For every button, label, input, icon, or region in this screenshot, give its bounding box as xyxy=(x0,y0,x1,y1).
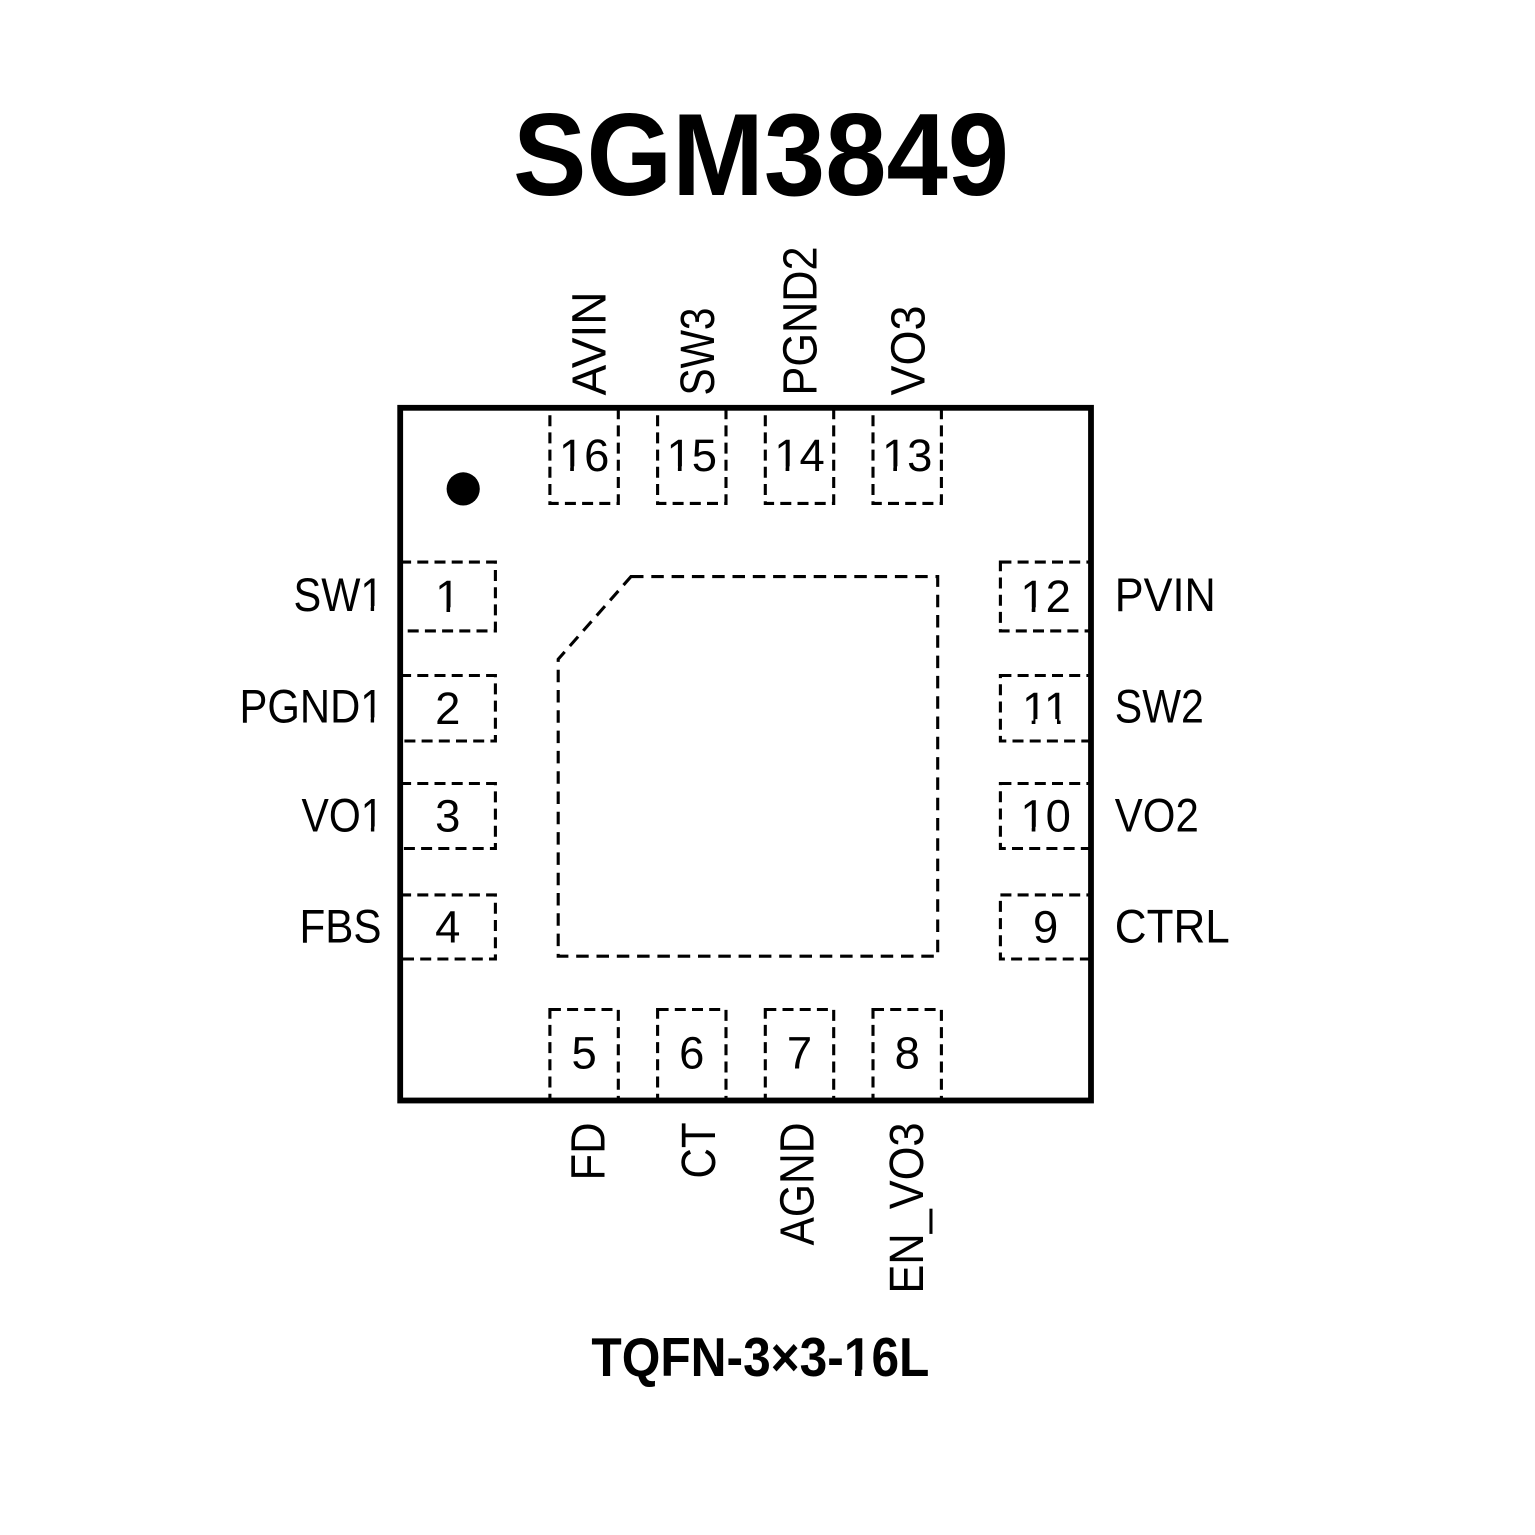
svg-text:AGND: AGND xyxy=(772,1123,825,1246)
svg-text:PGND2: PGND2 xyxy=(774,247,827,396)
svg-text:4: 4 xyxy=(435,902,460,953)
svg-text:CTRL: CTRL xyxy=(1115,899,1230,952)
svg-text:PGND1: PGND1 xyxy=(240,679,384,732)
svg-text:15: 15 xyxy=(667,430,718,481)
svg-text:EN_VO3: EN_VO3 xyxy=(881,1123,934,1294)
svg-text:SW1: SW1 xyxy=(294,568,384,621)
svg-text:13: 13 xyxy=(882,430,933,481)
svg-text:PVIN: PVIN xyxy=(1115,568,1216,621)
svg-text:VO2: VO2 xyxy=(1115,789,1199,842)
svg-text:8: 8 xyxy=(895,1027,920,1078)
svg-text:7: 7 xyxy=(787,1027,812,1078)
svg-text:11: 11 xyxy=(1022,683,1069,734)
svg-text:6: 6 xyxy=(679,1027,704,1078)
svg-text:SGM3849: SGM3849 xyxy=(513,89,1009,220)
svg-text:VO1: VO1 xyxy=(302,789,384,842)
svg-text:FD: FD xyxy=(562,1123,615,1181)
svg-text:1: 1 xyxy=(435,571,460,622)
svg-text:VO3: VO3 xyxy=(882,306,935,396)
svg-text:16: 16 xyxy=(559,430,610,481)
svg-text:TQFN-3×3-16L: TQFN-3×3-16L xyxy=(591,1326,929,1388)
svg-text:2: 2 xyxy=(435,683,460,734)
svg-text:5: 5 xyxy=(571,1027,596,1078)
svg-text:14: 14 xyxy=(774,430,825,481)
svg-text:SW2: SW2 xyxy=(1115,679,1204,732)
svg-text:SW3: SW3 xyxy=(672,308,725,396)
svg-text:10: 10 xyxy=(1020,791,1071,842)
svg-text:3: 3 xyxy=(435,791,460,842)
svg-text:CT: CT xyxy=(673,1123,726,1179)
svg-text:9: 9 xyxy=(1033,902,1058,953)
svg-text:AVIN: AVIN xyxy=(564,292,617,396)
svg-text:12: 12 xyxy=(1020,571,1071,622)
svg-text:FBS: FBS xyxy=(300,899,382,952)
